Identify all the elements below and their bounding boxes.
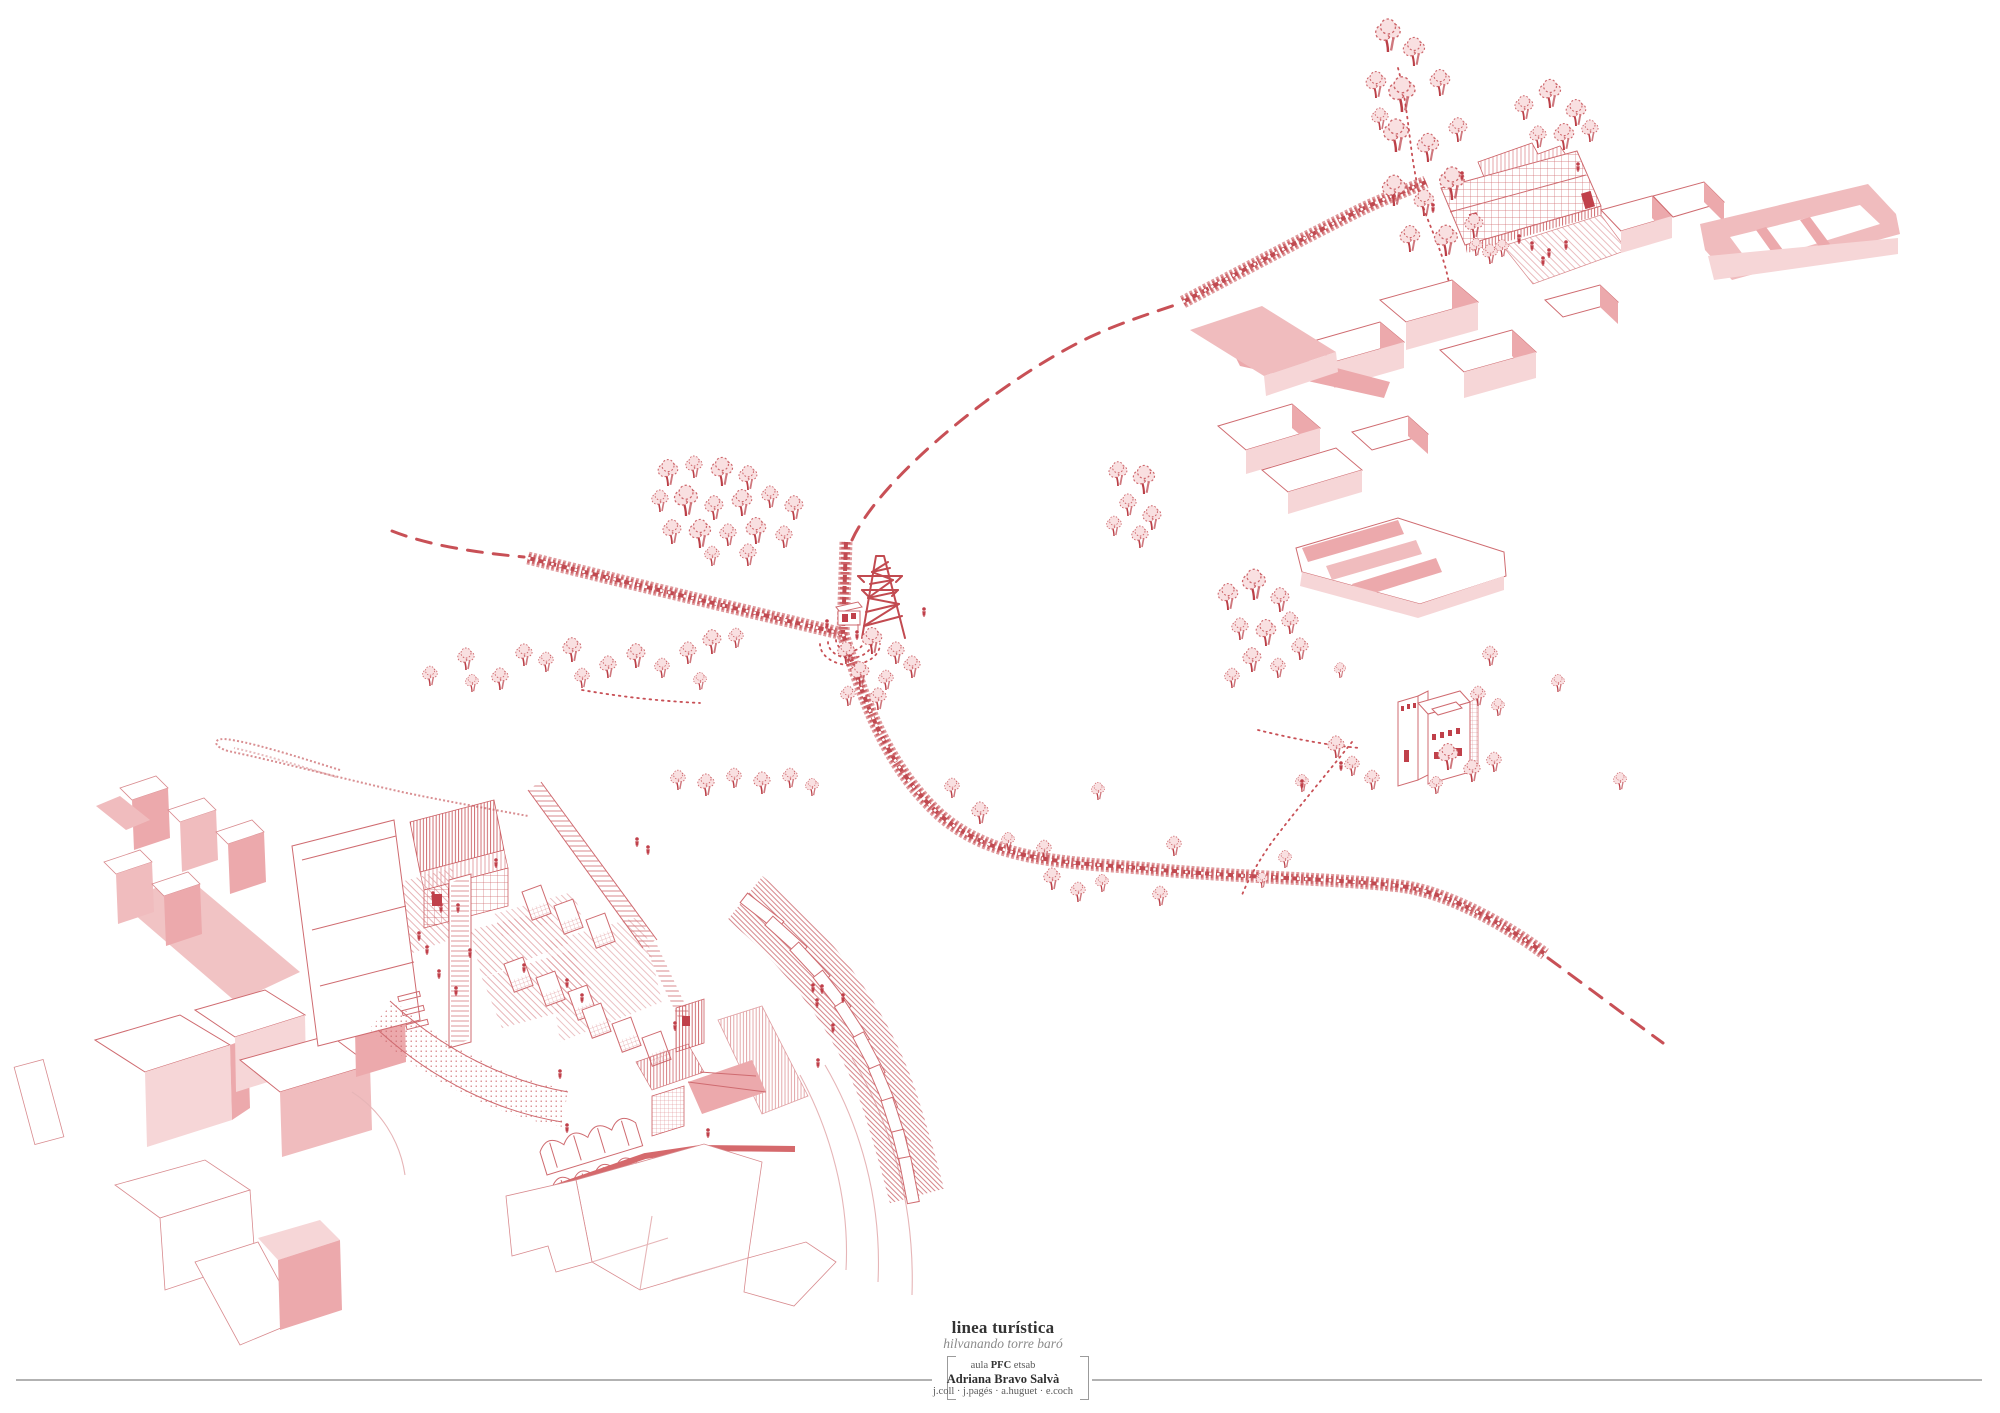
electricity-pylon (858, 556, 905, 638)
dashed-route-west (392, 531, 524, 557)
presentation-panel: linea turística hilvanando torre baró au… (0, 0, 2000, 1413)
walled-enclosure (1700, 184, 1900, 280)
panel-title: linea turística (803, 1318, 1203, 1338)
credit-author: Adriana Bravo Salvà (803, 1372, 1203, 1387)
upper-district (1190, 143, 1900, 618)
panel-subtitle: hilvanando torre baró (803, 1336, 1203, 1352)
tourist-pavilion (1441, 143, 1627, 284)
stepped-terraces (1296, 518, 1506, 618)
dashed-route-southeast (1548, 958, 1663, 1043)
credit-aula: aula PFC etsab (803, 1360, 1203, 1371)
bottom-rule-left (16, 1379, 932, 1381)
site-axonometric-drawing (0, 0, 2000, 1413)
credit-tutors: j.coll · j.pagés · a.huguet · e.coch (803, 1386, 1203, 1397)
bottom-rule-right (1092, 1379, 1982, 1381)
